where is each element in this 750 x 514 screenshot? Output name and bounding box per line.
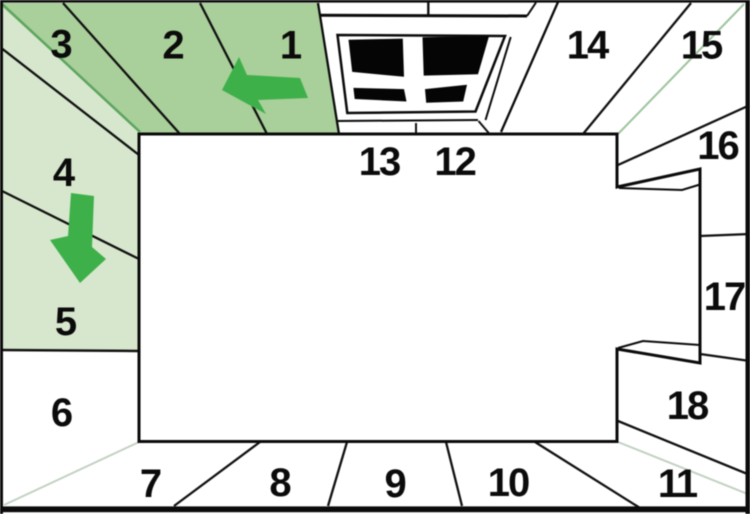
svg-text:14: 14 — [567, 24, 610, 68]
svg-text:2: 2 — [162, 24, 184, 68]
svg-text:17: 17 — [704, 275, 745, 319]
svg-text:18: 18 — [667, 384, 709, 428]
svg-text:7: 7 — [140, 462, 162, 506]
svg-text:9: 9 — [384, 462, 406, 506]
svg-text:3: 3 — [50, 23, 72, 67]
svg-text:10: 10 — [488, 461, 529, 505]
svg-text:6: 6 — [51, 391, 73, 435]
svg-text:8: 8 — [269, 461, 291, 505]
svg-text:4: 4 — [53, 151, 76, 195]
svg-text:15: 15 — [681, 24, 723, 68]
svg-text:1: 1 — [280, 24, 302, 68]
svg-text:11: 11 — [658, 462, 698, 506]
svg-text:13: 13 — [359, 140, 400, 184]
svg-text:12: 12 — [434, 140, 475, 184]
svg-text:16: 16 — [697, 124, 738, 168]
svg-text:5: 5 — [55, 300, 77, 344]
